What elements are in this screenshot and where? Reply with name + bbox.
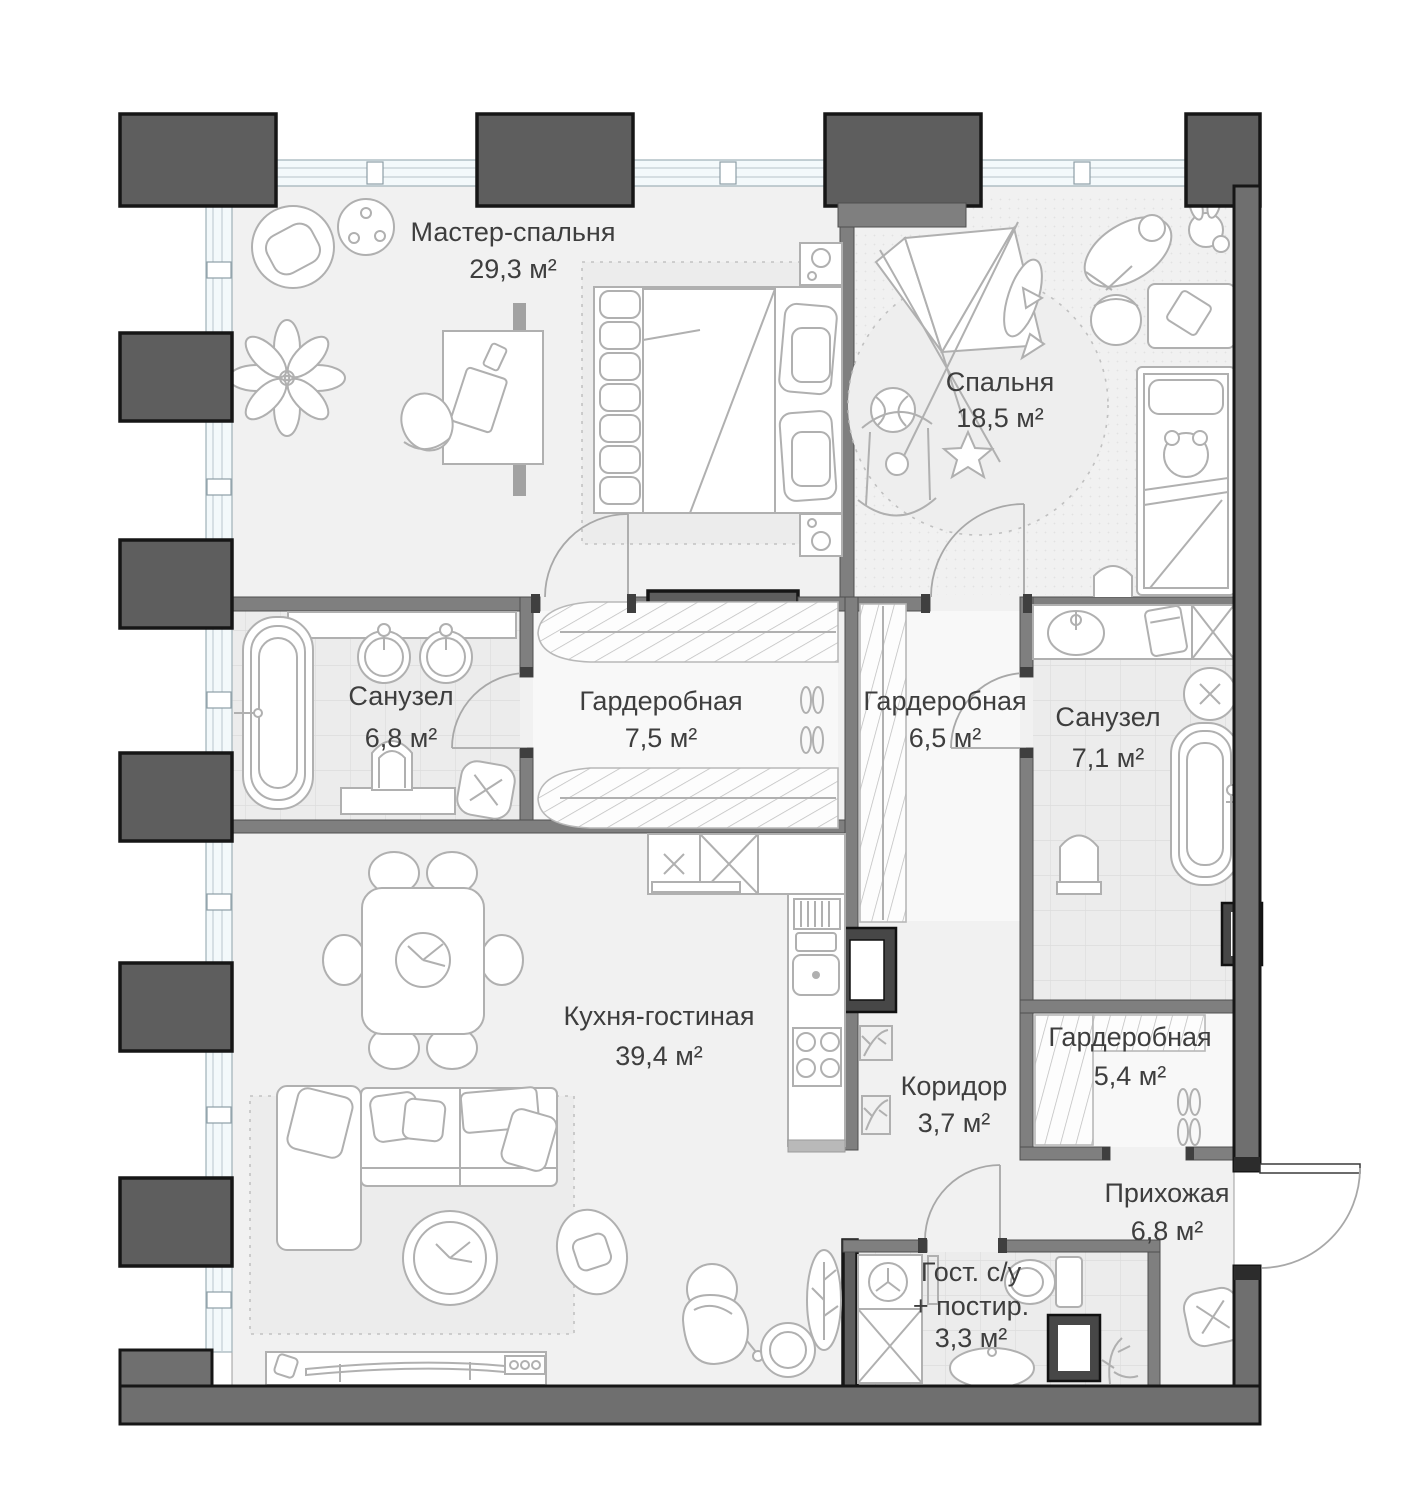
toilet-tank — [1056, 1257, 1082, 1307]
towel-stack — [1144, 605, 1187, 657]
room-area-wardrobe-kids: 6,5 м² — [909, 723, 982, 753]
column — [120, 753, 232, 841]
wc-cabinet — [341, 788, 455, 814]
kids-bed — [1137, 367, 1235, 595]
room-label-corridor: Коридор — [901, 1071, 1008, 1101]
pillow — [402, 1098, 446, 1142]
reading-chair — [683, 1295, 748, 1364]
wall-bottom — [120, 1386, 1260, 1424]
wall-right-upper — [1234, 186, 1260, 1171]
kitchen-counter-side — [788, 894, 845, 1146]
room-label-wardrobe-kids: Гардеробная — [863, 686, 1026, 716]
room-area-guest-wc: 3,3 м² — [935, 1323, 1008, 1353]
entrance-door — [1260, 1164, 1360, 1268]
column — [120, 1178, 232, 1266]
ball-toy — [871, 388, 915, 432]
column — [120, 963, 232, 1051]
room-area-kids-bedroom: 18,5 м² — [956, 403, 1044, 433]
room-label-guest-wc: Гост. с/у — [921, 1257, 1022, 1287]
floor-plan-canvas: Мастер-спальня 29,3 м² Спальня 18,5 м² С… — [0, 0, 1407, 1500]
room-label-master-bedroom: Мастер-спальня — [411, 217, 616, 247]
room-area-kitchen-living: 39,4 м² — [615, 1041, 703, 1071]
room-label-wardrobe-master: Гардеробная — [579, 686, 742, 716]
wall-right-lower — [1234, 1266, 1260, 1388]
floor-plan-svg: Мастер-спальня 29,3 м² Спальня 18,5 м² С… — [0, 0, 1407, 1500]
room-area-bath-left: 6,8 м² — [365, 723, 438, 753]
wall-guest-wc-left — [843, 1240, 857, 1388]
room-area-wardrobe-master: 7,5 м² — [625, 723, 698, 753]
column — [825, 114, 981, 206]
room-label-wardrobe-hall: Гардеробная — [1048, 1022, 1211, 1052]
room-label-hallway: Прихожая — [1104, 1178, 1229, 1208]
room-area-corridor: 3,7 м² — [918, 1108, 991, 1138]
column — [120, 114, 276, 206]
duvet — [643, 289, 775, 513]
pet-bed — [1094, 566, 1132, 597]
room-area-wardrobe-hall: 5,4 м² — [1094, 1061, 1167, 1091]
room-label-kitchen-living: Кухня-гостиная — [563, 1001, 754, 1031]
room-label-bath-left: Санузел — [348, 681, 453, 711]
vanity-counter — [288, 612, 516, 638]
room-label-bath-right: Санузел — [1055, 702, 1160, 732]
room-area-master-bedroom: 29,3 м² — [469, 254, 557, 284]
toilet — [1060, 836, 1098, 885]
room-label-kids-bedroom: Спальня — [946, 367, 1055, 397]
room-label-guest-wc-line2: + постир. — [913, 1291, 1029, 1321]
room-area-hallway: 6,8 м² — [1131, 1216, 1204, 1246]
column — [120, 540, 232, 628]
column — [120, 333, 232, 421]
column — [477, 114, 633, 206]
room-area-bath-right: 7,1 м² — [1072, 743, 1145, 773]
